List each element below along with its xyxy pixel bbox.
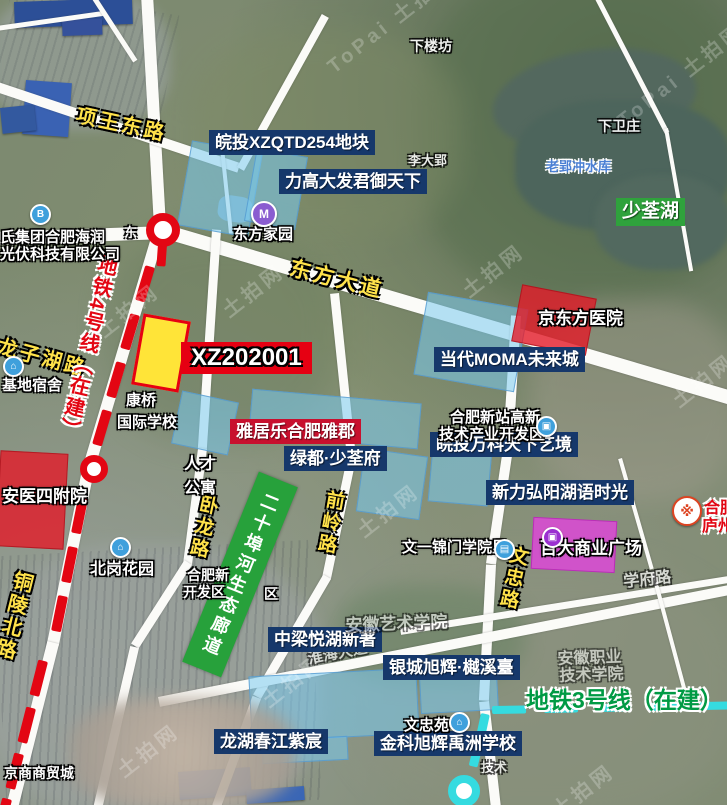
plaza-poi-icon: ▣ <box>542 527 563 548</box>
tag-xz202001: XZ202001 <box>181 342 312 374</box>
label-beigang: 北岗花园 <box>90 555 154 579</box>
tag-ligao: 力高大发君御天下 <box>279 169 427 194</box>
label-jingshang: 京商商贸城 <box>4 763 74 783</box>
label-rencai-1: 人才 <box>184 450 216 474</box>
metro4-station-marker <box>80 455 108 483</box>
estate-poi-icon: ⌂ <box>449 712 470 733</box>
metro4-station-stem <box>156 244 167 267</box>
road-label-xuefu: 学府路 <box>622 563 672 592</box>
metro3-station-marker <box>448 775 480 805</box>
metro3-dash <box>492 705 526 714</box>
tag-lvdu: 绿都·少荃府 <box>284 446 387 471</box>
park-poi-icon: ⌂ <box>110 537 131 558</box>
label-kaifa-2: 开发区 <box>183 582 225 602</box>
label-zhiye-2: 技术学院 <box>559 660 624 686</box>
school-poi-icon: ▤ <box>494 539 515 560</box>
label-wenzhongyuan: 文忠苑 <box>404 714 449 735</box>
label-seal-2: 庐州 <box>702 512 727 536</box>
label-kangqiao-1: 康桥 <box>126 389 156 410</box>
road-label-qianling: 前岭路 <box>311 488 349 558</box>
company-poi-icon: B <box>30 204 51 225</box>
gov-poi-icon: ▣ <box>536 416 557 437</box>
tag-moma: 当代MOMA未来城 <box>434 347 585 372</box>
tag-yincheng: 银城旭辉·樾溪臺 <box>383 655 520 680</box>
label-yishu-college: 安徽艺术学院 <box>345 607 448 636</box>
label-kaifa-3: 区 <box>264 584 278 604</box>
tag-shaoquanhu: 少荃湖 <box>616 198 685 226</box>
land-parcel-moma <box>413 292 528 392</box>
tag-xinli: 新力弘阳湖语时光 <box>486 480 634 505</box>
label-bojing-hospital: 京东方医院 <box>538 304 623 329</box>
metro3-line-label: 地铁3号线（在建） <box>526 681 723 715</box>
label-lidaying: 李大郢 <box>408 150 447 169</box>
satellite-land-map: 二十埠河生态廊道 ToPai 土拍网 ToPai 土拍网 土拍网 土拍网 土拍网… <box>0 0 727 805</box>
label-anyi-hospital: 安医四附院 <box>2 482 87 507</box>
metro4-station-name-partial: 东 <box>124 222 137 241</box>
metro-logo-icon: M <box>251 201 277 227</box>
land-parcel-kangqiao <box>171 391 239 456</box>
label-rencai-2: 公寓 <box>184 474 216 498</box>
seal-icon: ※ <box>672 496 702 526</box>
tag-wantou254: 皖投XZQTD254地块 <box>209 130 375 155</box>
label-gaoxin-2: 技术产业开发区 <box>439 423 544 444</box>
label-haijun-2: 光伏科技有限公司 <box>0 243 120 264</box>
tag-yajule: 雅居乐合肥雅郡 <box>230 419 361 444</box>
label-kangqiao-2: 国际学校 <box>117 411 177 432</box>
tag-longhu: 龙湖春江紫宸 <box>214 729 328 754</box>
label-reservoir: 老郢冲水库 <box>546 156 611 175</box>
metro4-dash <box>0 798 12 805</box>
blue-roof <box>62 19 103 36</box>
metro4-station-marker <box>146 213 180 247</box>
blue-roof <box>0 104 37 133</box>
label-jishu-partial: 技术 <box>481 757 507 776</box>
label-xialoufang: 下楼坊 <box>410 36 452 56</box>
label-sushe: 基地宿舍 <box>2 374 62 395</box>
label-wenyi-school: 文一锦门学院里 <box>402 536 507 557</box>
label-xiaweizhuang: 下卫庄 <box>598 116 640 136</box>
dorm-poi-icon: ⌂ <box>3 356 24 377</box>
